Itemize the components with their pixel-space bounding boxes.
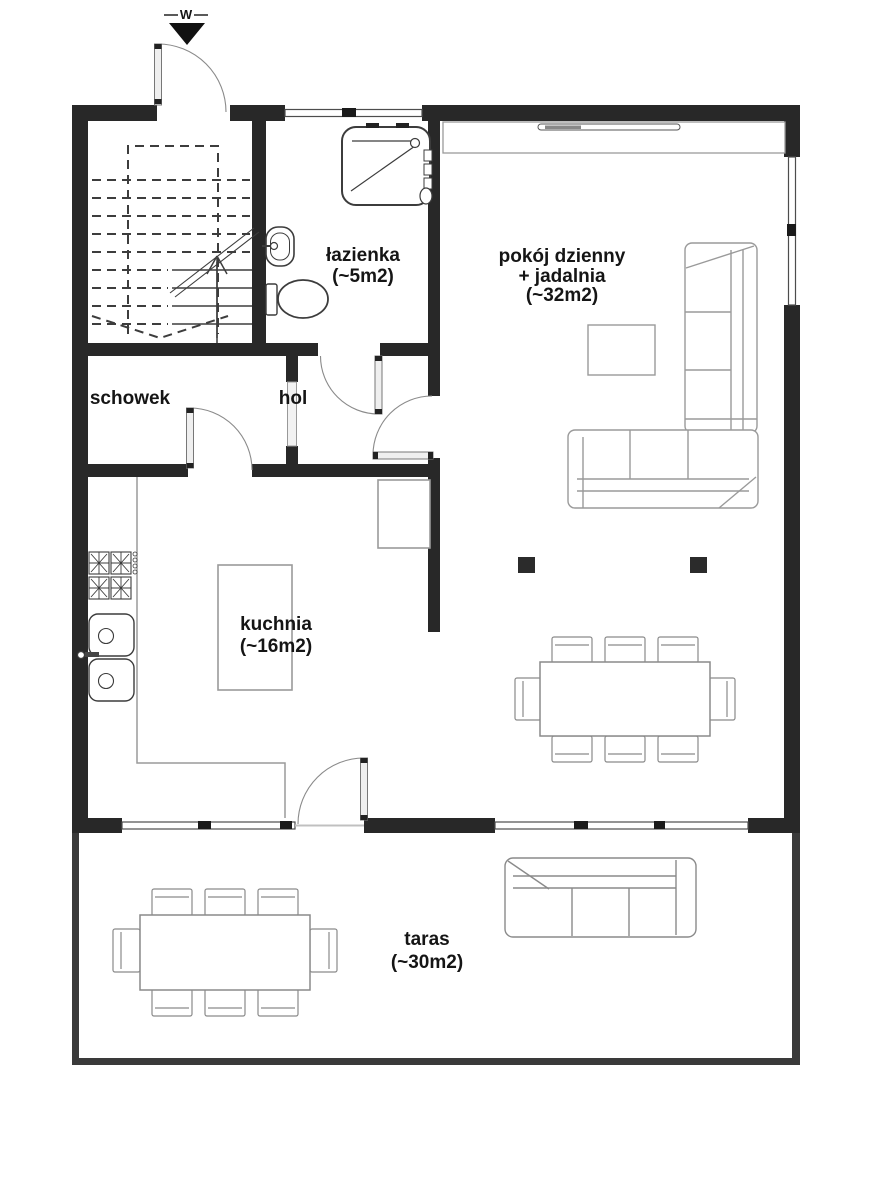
patio-door: [298, 758, 368, 824]
wall-bottom-a: [72, 818, 122, 833]
kitchen-area: (~16m2): [240, 636, 312, 657]
livingroom-label: pokój dzienny: [499, 246, 626, 267]
dining-chair: [552, 637, 592, 663]
terrace-dining-set: [113, 889, 337, 1016]
tv-sideboard: [443, 122, 785, 153]
bathroom-fixtures: [262, 123, 432, 318]
dining-chair: [658, 736, 698, 762]
entrance-label: W: [180, 7, 193, 22]
entrance-arrow-icon: [169, 23, 205, 45]
dining-chair: [605, 637, 645, 663]
wall-stairs-bathroom: [252, 121, 266, 345]
wall-top-c: [422, 105, 800, 121]
terrace-area: (~30m2): [391, 952, 463, 973]
dining-chair: [658, 637, 698, 663]
burner: [111, 577, 131, 599]
dining-chair: [605, 736, 645, 762]
faucet-icon: [85, 652, 99, 657]
dining-chair: [709, 678, 735, 720]
entrance-marker: W: [164, 7, 208, 45]
terrace-chair: [258, 989, 298, 1016]
dining-chair: [552, 736, 592, 762]
bathroom-area: (~5m2): [332, 266, 394, 287]
terrace-chair: [205, 889, 245, 916]
floor-plan-drawing: W łazienka (~5m2) pokój dzienny + jadaln…: [0, 0, 873, 1200]
bathroom-sink: [262, 227, 294, 266]
wall-kitchen-top-left: [72, 464, 188, 477]
hall-label: hol: [279, 388, 308, 409]
terrace-table: [140, 915, 310, 990]
staircase-break-line: [170, 228, 259, 297]
wall-storage-top: [286, 356, 298, 382]
staircase-upper-flight-dashed: [92, 146, 250, 338]
burner: [89, 577, 109, 599]
floor-plan: W łazienka (~5m2) pokój dzienny + jadaln…: [0, 0, 873, 1200]
window-living-bottom: [495, 822, 748, 829]
livingroom-label-2: + jadalnia: [518, 266, 606, 287]
terrace-border-left: [72, 833, 79, 1065]
staircase-direction-arrow: [207, 256, 227, 338]
kitchen-label: kuchnia: [240, 614, 312, 635]
livingroom-area: (~32m2): [526, 285, 598, 306]
bathroom-door: [321, 356, 383, 414]
burner: [111, 552, 131, 574]
livingroom-furniture: [443, 122, 785, 762]
wall-bathroom-bottom-left: [266, 343, 318, 356]
terrace-border-right: [792, 833, 800, 1065]
shower: [342, 123, 432, 205]
dining-table: [540, 662, 710, 736]
wall-top-b: [230, 105, 285, 121]
terrace-chair: [310, 929, 337, 972]
bathroom-label: łazienka: [326, 245, 400, 266]
terrace-sofa: [505, 858, 696, 937]
column: [690, 557, 707, 573]
entrance-door: [155, 44, 227, 112]
terrace-chair: [258, 889, 298, 916]
terrace-chair: [152, 989, 192, 1016]
kitchen-cabinet: [378, 480, 430, 548]
dining-chair: [515, 678, 541, 720]
terrace-chair: [205, 989, 245, 1016]
kitchen-door: [187, 408, 253, 470]
stove: [89, 552, 137, 599]
dining-set: [515, 637, 735, 762]
wall-right-b: [784, 305, 800, 833]
terrace-chair: [113, 929, 140, 972]
storage-label: schowek: [90, 388, 171, 409]
burner: [89, 552, 109, 574]
coffee-table: [588, 325, 655, 375]
staircase: [92, 146, 259, 343]
wall-right-a: [784, 105, 800, 157]
wall-bottom-c: [748, 818, 800, 833]
terrace-border-bottom: [72, 1058, 800, 1065]
wall-bottom-b: [364, 818, 495, 833]
wall-kitchen-top-right: [252, 464, 438, 477]
column: [518, 557, 535, 573]
terrace-label: taras: [404, 929, 449, 950]
wall-stairs-bottom: [72, 343, 266, 356]
terrace-chair: [152, 889, 192, 916]
wall-top-a: [72, 105, 157, 121]
toilet: [266, 280, 328, 318]
